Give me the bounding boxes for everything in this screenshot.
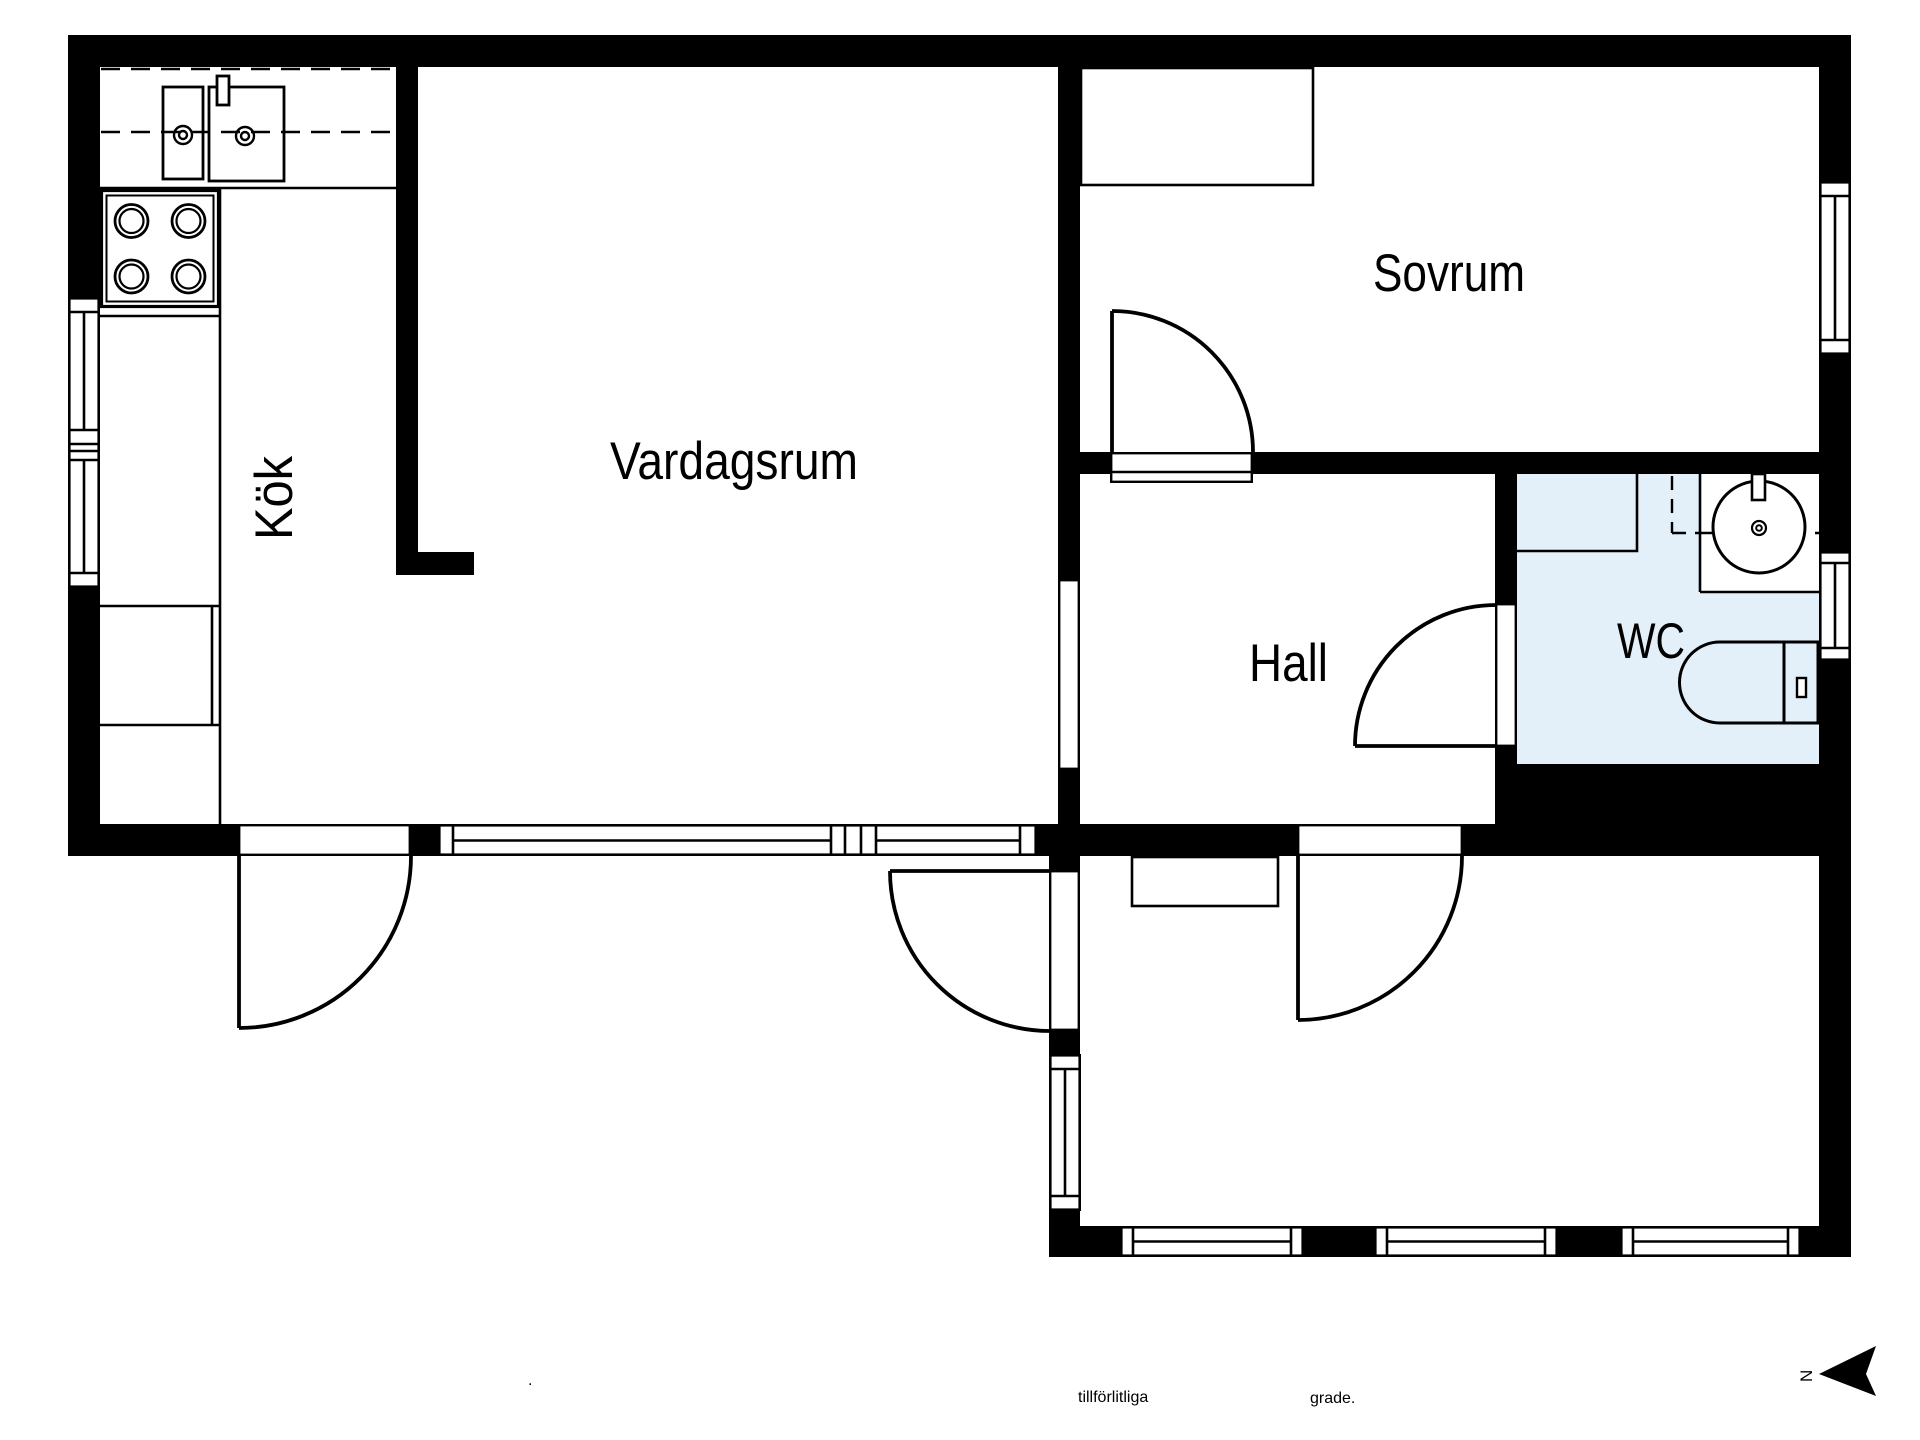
svg-text:.: . [528, 1372, 532, 1389]
svg-text:Hall: Hall [1249, 634, 1328, 693]
svg-text:Sovrum: Sovrum [1373, 244, 1525, 303]
svg-text:N: N [1797, 1370, 1816, 1382]
svg-text:Vardagsrum: Vardagsrum [610, 432, 858, 491]
svg-text:Kök: Kök [245, 456, 304, 540]
svg-text:tillförlitliga: tillförlitliga [1078, 1389, 1148, 1406]
svg-text:grade.: grade. [1310, 1390, 1355, 1407]
svg-text:WC: WC [1617, 613, 1685, 669]
